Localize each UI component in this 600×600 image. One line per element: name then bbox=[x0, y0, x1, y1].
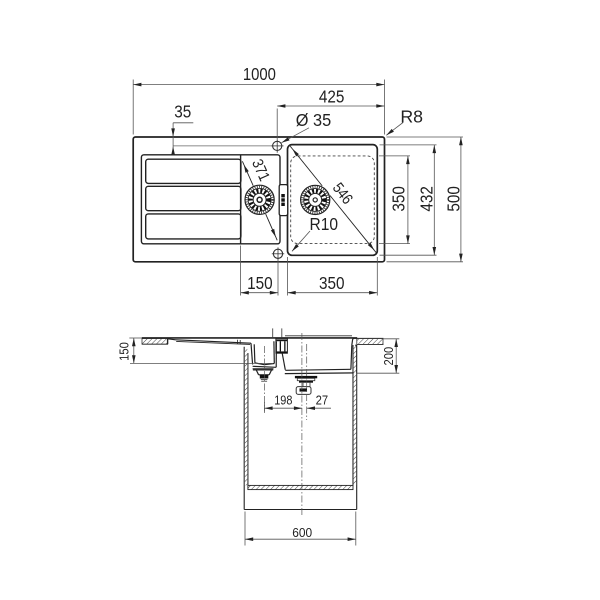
svg-text:200: 200 bbox=[382, 347, 396, 366]
svg-text:Ø 35: Ø 35 bbox=[296, 110, 331, 130]
svg-text:150: 150 bbox=[247, 273, 273, 293]
svg-text:432: 432 bbox=[417, 186, 437, 212]
svg-text:350: 350 bbox=[319, 273, 345, 293]
svg-text:546: 546 bbox=[329, 180, 356, 208]
svg-text:500: 500 bbox=[443, 186, 463, 212]
svg-text:35: 35 bbox=[174, 101, 191, 121]
svg-text:R8: R8 bbox=[400, 106, 423, 126]
svg-text:150: 150 bbox=[117, 342, 131, 361]
svg-text:350: 350 bbox=[388, 186, 408, 212]
svg-text:371: 371 bbox=[248, 157, 272, 184]
svg-text:1000: 1000 bbox=[243, 64, 276, 84]
svg-text:27: 27 bbox=[316, 393, 329, 407]
svg-text:600: 600 bbox=[292, 526, 312, 540]
svg-text:425: 425 bbox=[319, 86, 345, 106]
svg-text:198: 198 bbox=[274, 393, 292, 407]
svg-text:R10: R10 bbox=[310, 214, 339, 234]
